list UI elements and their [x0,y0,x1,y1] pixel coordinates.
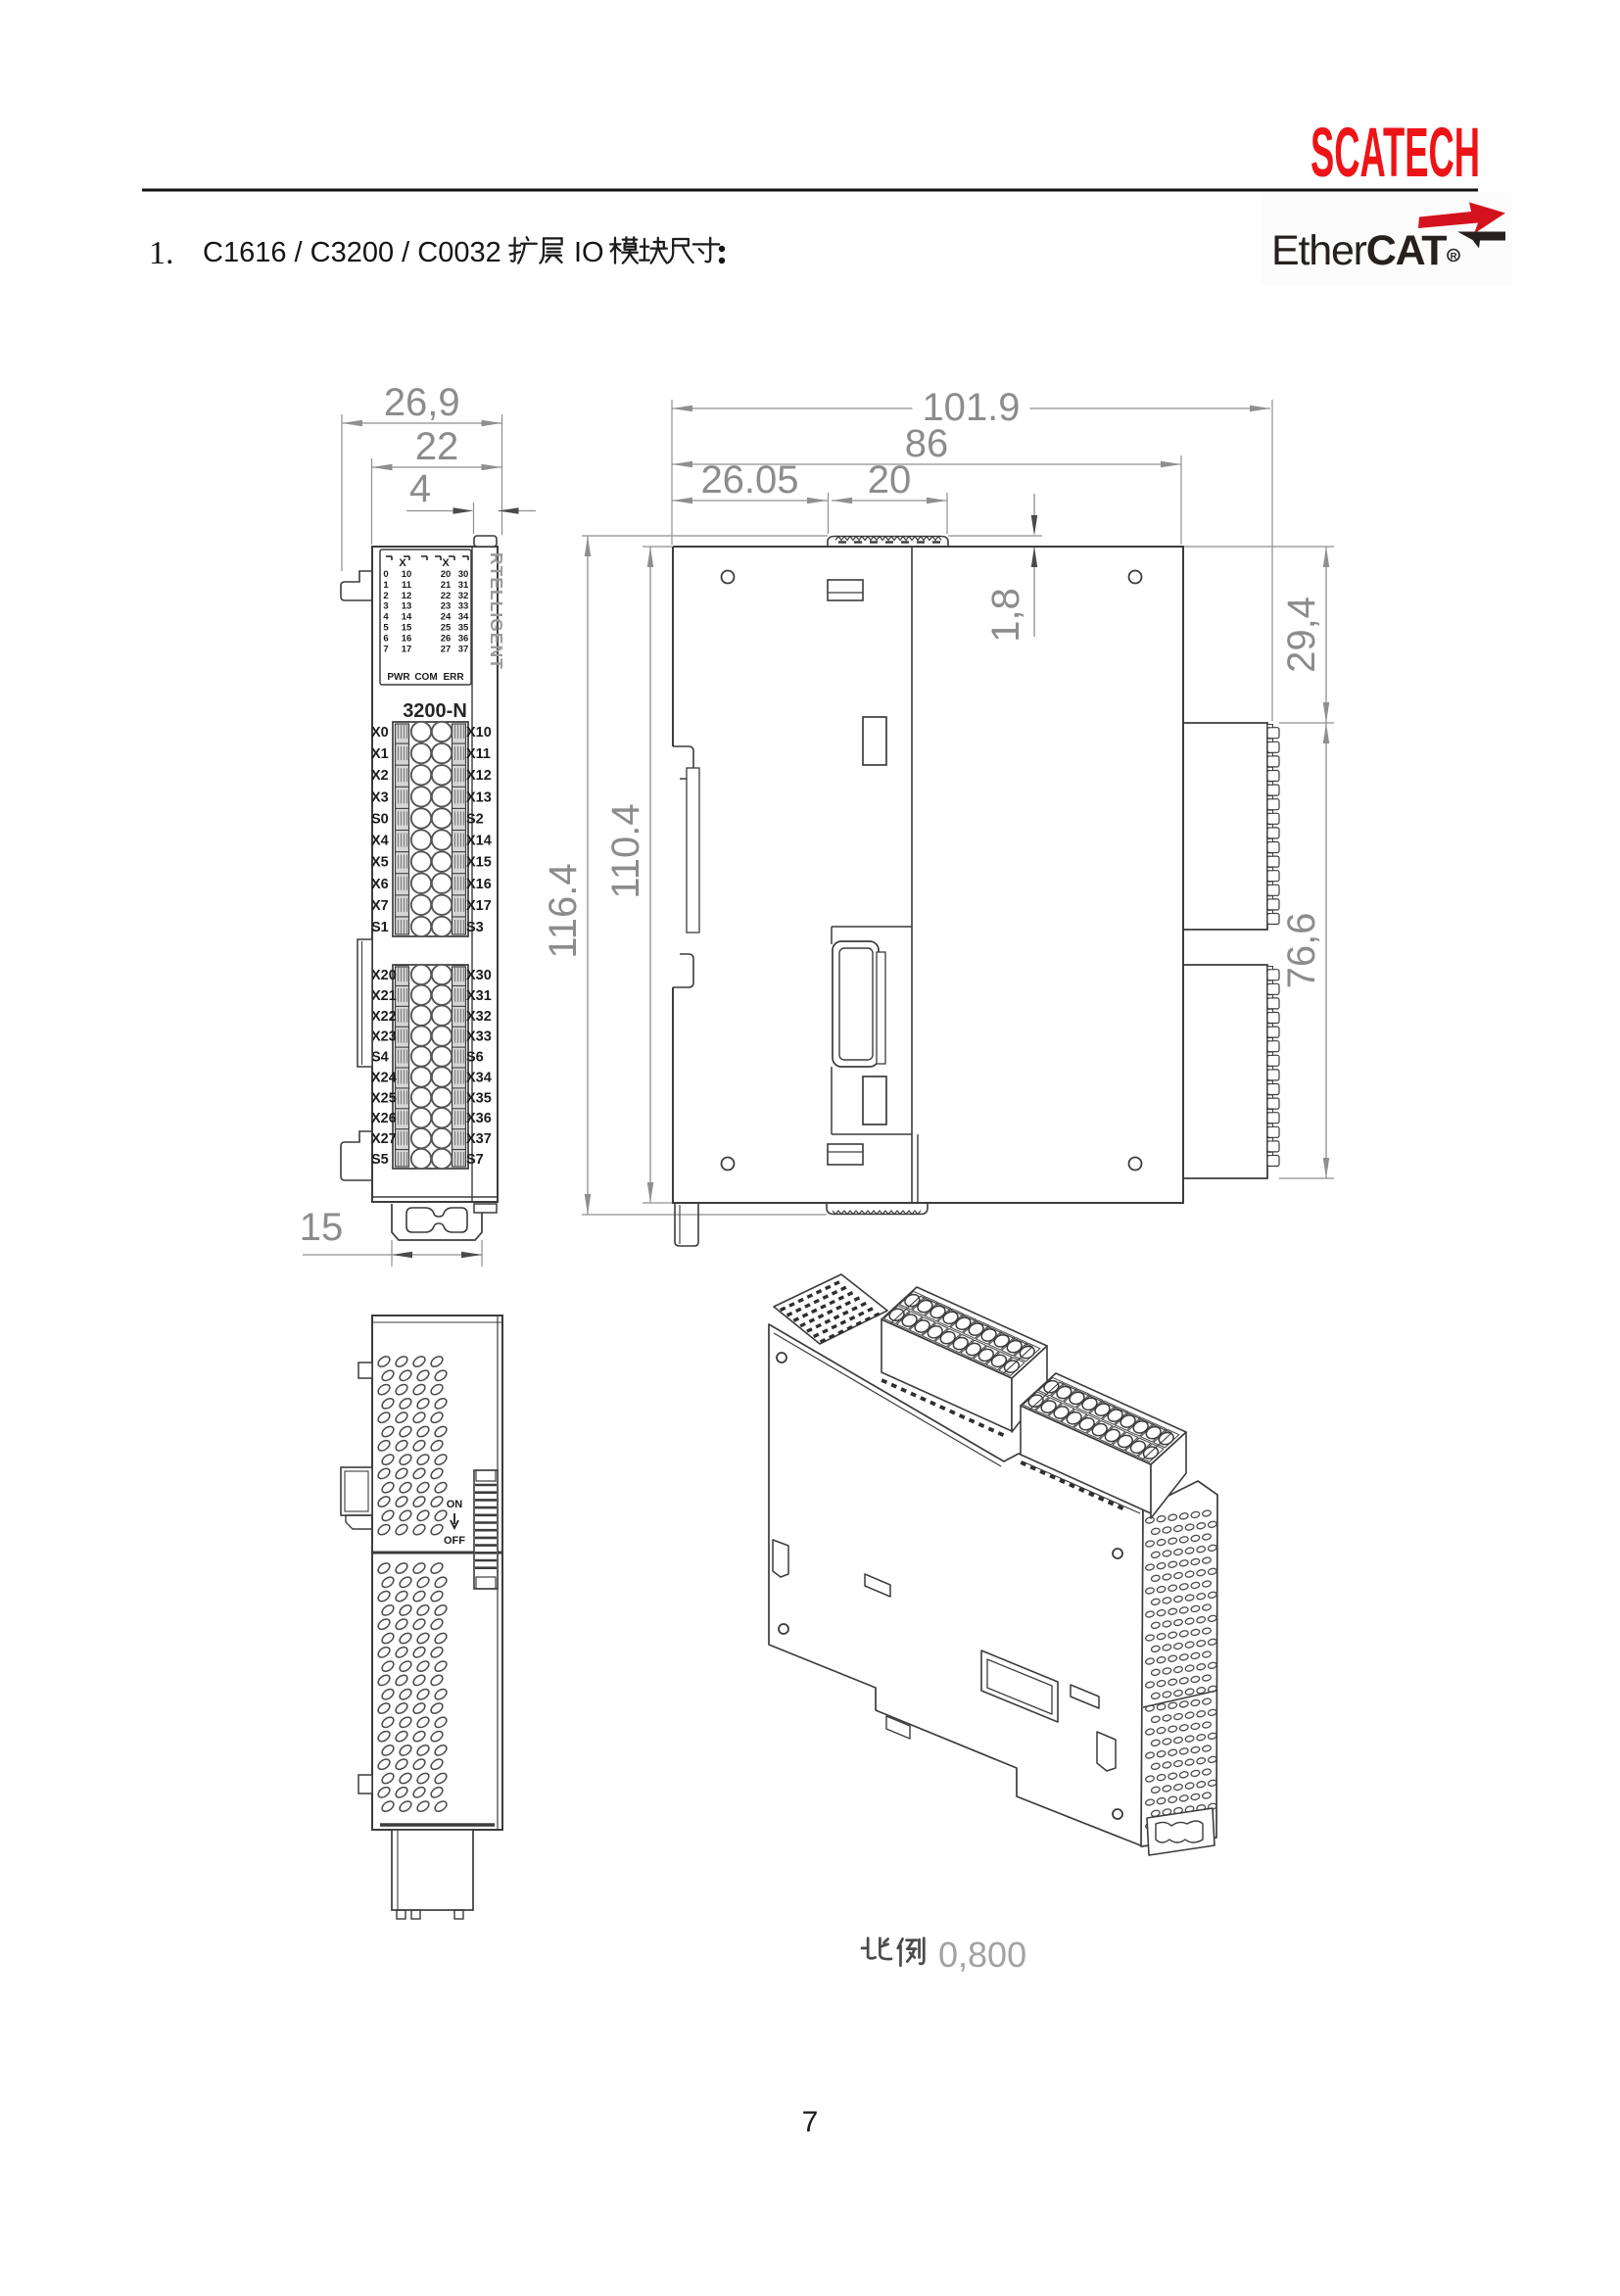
svg-text:110.4: 110.4 [604,803,647,898]
svg-text:ON: ON [447,1499,463,1510]
svg-text:36: 36 [458,633,469,644]
svg-text:X: X [442,557,450,569]
svg-text:COM: COM [414,672,437,683]
svg-text:X6: X6 [371,877,389,892]
svg-text:X5: X5 [371,855,389,871]
svg-text:34: 34 [458,612,469,623]
svg-text:14: 14 [402,612,412,623]
svg-text:22: 22 [415,425,459,468]
svg-text:X: X [399,557,406,569]
svg-text:32: 32 [458,591,469,601]
svg-text:X26: X26 [371,1111,397,1126]
svg-text:4: 4 [409,467,431,510]
svg-text:26: 26 [441,633,452,644]
svg-text:X22: X22 [371,1009,397,1025]
svg-text:X0: X0 [371,725,389,741]
svg-text:86: 86 [905,422,949,465]
svg-text:5: 5 [383,623,389,634]
svg-text:X17: X17 [466,898,492,914]
svg-text:1,8: 1,8 [984,588,1027,643]
svg-text:0: 0 [383,569,388,580]
svg-text:X34: X34 [466,1070,492,1085]
svg-text:15: 15 [300,1206,344,1249]
svg-text:S1: S1 [371,920,389,935]
svg-text:S4: S4 [371,1050,389,1066]
svg-text:33: 33 [458,601,469,612]
svg-text:10: 10 [402,569,412,580]
svg-text:IO: IO [574,237,604,268]
svg-text:15: 15 [402,623,412,634]
svg-text:3: 3 [383,601,388,612]
svg-text:X33: X33 [466,1029,492,1045]
svg-text:7: 7 [383,644,388,654]
svg-text:ERR: ERR [443,672,464,683]
svg-text:29,4: 29,4 [1280,597,1323,673]
svg-text:116.4: 116.4 [542,863,585,958]
svg-text:X21: X21 [371,988,397,1004]
svg-text:S3: S3 [466,920,484,935]
svg-text:EtherCAT: EtherCAT [1271,227,1447,274]
svg-text:X1: X1 [371,746,389,762]
svg-text:S0: S0 [371,811,389,827]
svg-text:RTELLIGENT: RTELLIGENT [487,552,506,670]
svg-text:27: 27 [441,644,452,654]
svg-text:X27: X27 [371,1131,397,1147]
svg-text:X4: X4 [371,834,389,849]
svg-text:21: 21 [441,580,452,591]
svg-text:1.: 1. [149,235,174,271]
svg-text:20: 20 [868,458,912,502]
svg-text:X31: X31 [466,988,492,1004]
svg-text:13: 13 [402,601,412,612]
svg-text:X13: X13 [466,789,492,805]
svg-text:35: 35 [458,623,469,634]
svg-text:X14: X14 [466,834,492,849]
svg-text:PWR: PWR [387,672,410,683]
svg-text:17: 17 [402,644,412,654]
svg-text:X3: X3 [371,789,389,805]
svg-text:X36: X36 [466,1111,492,1126]
svg-text:11: 11 [402,580,412,591]
svg-text:OFF: OFF [444,1535,465,1547]
svg-text:X23: X23 [371,1029,397,1045]
svg-text:S6: S6 [466,1050,484,1066]
svg-text:26.05: 26.05 [700,458,798,502]
svg-text:X20: X20 [371,968,397,983]
svg-text:SCATECH: SCATECH [1310,114,1480,191]
svg-text:X30: X30 [466,968,492,983]
svg-text:37: 37 [458,644,469,654]
svg-text:X24: X24 [371,1070,397,1085]
svg-text:20: 20 [441,569,452,580]
svg-text:26,9: 26,9 [384,381,460,424]
svg-text:6: 6 [383,633,388,644]
svg-text:3200-N: 3200-N [403,700,467,722]
svg-text:X15: X15 [466,855,492,871]
svg-text:X32: X32 [466,1009,492,1025]
svg-text:R: R [1451,252,1457,263]
svg-text:S5: S5 [371,1152,389,1168]
svg-text:24: 24 [441,612,452,623]
svg-text:X7: X7 [371,898,389,914]
svg-text:31: 31 [458,580,469,591]
svg-text:22: 22 [441,591,452,601]
svg-text:30: 30 [458,569,469,580]
svg-text:X16: X16 [466,877,492,892]
svg-text:2: 2 [383,591,388,601]
svg-text:X37: X37 [466,1131,492,1147]
svg-text:X2: X2 [371,768,389,784]
svg-text:25: 25 [441,623,452,634]
svg-text:16: 16 [402,633,412,644]
svg-text:S2: S2 [466,811,484,827]
svg-text:12: 12 [402,591,412,601]
svg-text:X35: X35 [466,1090,492,1106]
svg-text:C1616 / C3200 / C0032: C1616 / C3200 / C0032 [203,237,501,268]
svg-text:4: 4 [383,612,389,623]
svg-text:X10: X10 [466,725,492,741]
svg-text:S7: S7 [466,1152,484,1168]
svg-text:X11: X11 [466,746,491,762]
svg-text:76,6: 76,6 [1280,913,1323,989]
svg-text:X25: X25 [371,1090,397,1106]
svg-text:7: 7 [802,2106,819,2138]
svg-text:23: 23 [441,601,452,612]
svg-text:X12: X12 [466,768,492,784]
svg-text:1: 1 [383,580,389,591]
svg-text:0,800: 0,800 [938,1935,1026,1975]
